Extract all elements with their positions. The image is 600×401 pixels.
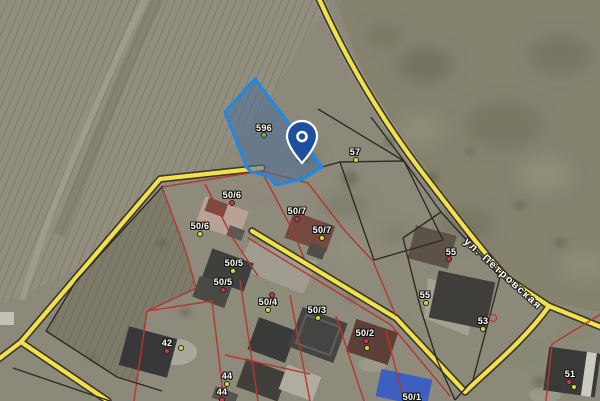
satellite-layer <box>0 0 600 401</box>
building <box>543 347 600 398</box>
map-canvas[interactable]: ул. Петровская 5965750/650/650/750/750/5… <box>0 0 600 401</box>
